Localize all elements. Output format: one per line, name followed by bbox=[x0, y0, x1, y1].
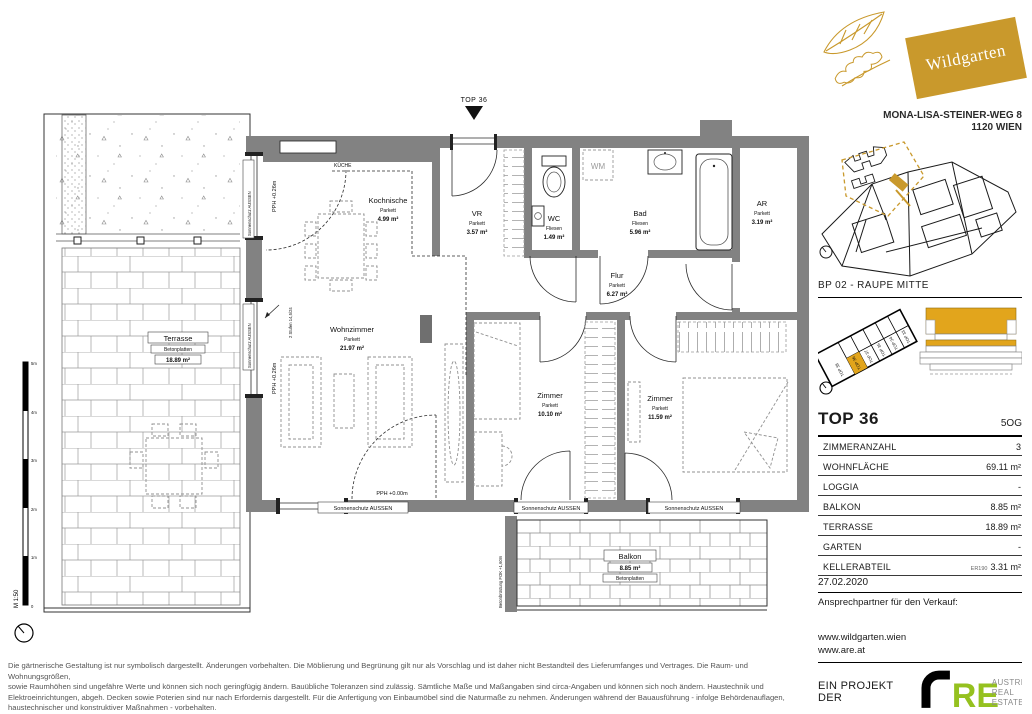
disclaimer-line: haustechnischer und konstruktiver Maßnah… bbox=[8, 703, 808, 714]
wardrobes bbox=[504, 150, 786, 498]
section-highlight-floor bbox=[926, 308, 1016, 334]
room-label-terrasse: Terrasse Betonplatten 18.89 m² bbox=[148, 332, 208, 364]
room-label-kochnische: Kochnische Parkett 4.99 m² bbox=[369, 196, 408, 223]
are-caption-1: AUSTRIAN bbox=[992, 678, 1022, 687]
are-caption-2: REAL bbox=[992, 688, 1015, 697]
key-plan: TOP 38 TOP 36 TOP 37 TOP 35 TOP 34 TOP 3… bbox=[818, 310, 917, 387]
room-label-zimmer2: Zimmer Parkett 11.59 m² bbox=[647, 394, 673, 421]
zimmer1-name: Zimmer bbox=[537, 391, 563, 400]
scale-label: M 1:50 bbox=[14, 589, 20, 608]
section-diagram bbox=[920, 308, 1022, 374]
bad-area: 5.96 m² bbox=[630, 229, 651, 236]
table-row: WOHNFLÄCHE 69.11 m² bbox=[818, 456, 1022, 476]
disclaimer-line: sowie Raumhöhen sind ungefähre Werte und… bbox=[8, 682, 808, 693]
terrasse-name: Terrasse bbox=[164, 334, 193, 343]
windows bbox=[245, 152, 742, 514]
kochnische-area: 4.99 m² bbox=[378, 216, 399, 223]
website-wildgarten[interactable]: www.wildgarten.wien bbox=[818, 631, 1022, 644]
sonnenschutz-label-2: Sonnenschutz AUSSEN bbox=[522, 506, 581, 512]
vr-finish: Parkett bbox=[469, 221, 485, 227]
project-footer: EIN PROJEKT DER RE AUSTRIAN REAL ESTATE bbox=[818, 662, 1022, 710]
wm-label: WM bbox=[591, 162, 606, 171]
leaf-icon bbox=[818, 8, 910, 94]
address-street: MONA-LISA-STEINER-WEG 8 bbox=[883, 110, 1022, 122]
row-label: KELLERABTEIL bbox=[818, 562, 891, 575]
are-caption-3: ESTATE bbox=[992, 698, 1022, 707]
unit-header: TOP 36 5OG bbox=[818, 409, 1022, 437]
vr-area: 3.57 m² bbox=[467, 229, 488, 236]
room-label-balkon: Balkon 8.85 m² Betonplatten bbox=[603, 550, 657, 582]
zimmer2-name: Zimmer bbox=[647, 394, 673, 403]
room-label-bad: Bad Fliesen 5.96 m² bbox=[630, 209, 651, 236]
sonnenschutz-label-5: Sonnenschutz AUSSEN bbox=[247, 323, 252, 368]
plan-date: 27.02.2020 bbox=[818, 577, 1022, 593]
row-value: 8.85 m² bbox=[990, 502, 1022, 515]
row-label: ZIMMERANZAHL bbox=[818, 442, 896, 455]
balcony-area: Betonbrüstung FOK +1,60m Balkon 8.85 m² … bbox=[498, 516, 767, 612]
address: MONA-LISA-STEINER-WEG 8 1120 WIEN bbox=[883, 110, 1022, 134]
bad-finish: Fliesen bbox=[632, 221, 648, 227]
wildgarten-logo-text: Wildgarten bbox=[924, 40, 1007, 75]
are-logo: RE AUSTRIAN REAL ESTATE bbox=[920, 670, 1022, 710]
entrance: TOP 36 bbox=[450, 97, 497, 196]
pph-label-3: PPH +0.00m bbox=[376, 491, 408, 497]
unit-floor: 5OG bbox=[1001, 418, 1022, 429]
table-row: LOGGIA - bbox=[818, 476, 1022, 496]
row-value: ER1903.31 m² bbox=[971, 562, 1022, 575]
wohnzimmer-area: 21.97 m² bbox=[340, 345, 364, 352]
row-label: BALKON bbox=[818, 502, 861, 515]
flur-area: 6.27 m² bbox=[607, 291, 628, 298]
scale-mark-2m: 2m bbox=[31, 507, 37, 512]
kueche-label: KÜCHE bbox=[334, 162, 352, 169]
scale-mark-3m: 3m bbox=[31, 458, 37, 463]
room-label-ar: AR Parkett 3.19 m² bbox=[752, 199, 773, 226]
wohnzimmer-name: Wohnzimmer bbox=[330, 325, 375, 334]
project-label: EIN PROJEKT DER bbox=[818, 670, 920, 704]
disclaimer-line: Die gärtnerische Gestaltung ist nur symb… bbox=[8, 661, 808, 682]
ar-area: 3.19 m² bbox=[752, 219, 773, 226]
table-row: KELLERABTEIL ER1903.31 m² bbox=[818, 556, 1022, 576]
terrace-area: Terrasse Betonplatten 18.89 m² bbox=[44, 114, 250, 612]
pph-label-1: PPH +0.26m bbox=[272, 180, 278, 212]
row-value: 18.89 m² bbox=[985, 522, 1022, 535]
wc-finish: Fliesen bbox=[546, 226, 562, 232]
unit-id: TOP 36 bbox=[818, 409, 879, 429]
terrasse-area: 18.89 m² bbox=[166, 357, 190, 364]
room-label-wohnzimmer: Wohnzimmer Parkett 21.97 m² bbox=[330, 325, 375, 352]
contact-label: Ansprechpartner für den Verkauf: bbox=[818, 597, 1022, 608]
websites: www.wildgarten.wien www.are.at bbox=[818, 631, 1022, 657]
scale-mark-4m: 4m bbox=[31, 410, 37, 415]
row-value: - bbox=[1018, 542, 1022, 555]
bruestung-label: Betonbrüstung FOK +1,60m bbox=[498, 555, 503, 608]
doors bbox=[266, 170, 732, 500]
kitchen-niche bbox=[280, 141, 336, 153]
building-diagrams: TOP 38 TOP 36 TOP 37 TOP 35 TOP 34 TOP 3… bbox=[818, 300, 1022, 400]
table-row: BALKON 8.85 m² bbox=[818, 496, 1022, 516]
ar-finish: Parkett bbox=[754, 211, 770, 217]
room-label-wc: WC Fliesen 1.49 m² bbox=[544, 214, 565, 241]
disclaimer-line: Elektroeinrichtungen, abgeh. Decken sowi… bbox=[8, 693, 808, 704]
wc-area: 1.49 m² bbox=[544, 234, 565, 241]
zimmer1-area: 10.10 m² bbox=[538, 411, 562, 418]
entrance-label: TOP 36 bbox=[461, 97, 488, 104]
ar-name: AR bbox=[757, 199, 768, 208]
wohnzimmer-finish: Parkett bbox=[344, 337, 360, 343]
site-plan-label: BP 02 - RAUPE MITTE bbox=[818, 280, 1022, 298]
scale-mark-1m: 1m bbox=[31, 555, 37, 560]
row-label: TERRASSE bbox=[818, 522, 873, 535]
table-row: TERRASSE 18.89 m² bbox=[818, 516, 1022, 536]
flur-finish: Parkett bbox=[609, 283, 625, 289]
room-label-vr: VR Parkett 3.57 m² bbox=[467, 209, 488, 236]
pph-label-2: PPH +0.26m bbox=[272, 362, 278, 394]
bad-name: Bad bbox=[633, 209, 646, 218]
row-label: WOHNFLÄCHE bbox=[818, 462, 889, 475]
table-row: GARTEN - bbox=[818, 536, 1022, 556]
room-label-flur: Flur Parkett 6.27 m² bbox=[607, 271, 628, 298]
row-label: LOGGIA bbox=[818, 482, 859, 495]
annotations: PPH +0.26m PPH +0.26m PPH +0.00m 2 Stufe… bbox=[243, 160, 740, 513]
sonnenschutz-label-1: Sonnenschutz AUSSEN bbox=[334, 506, 393, 512]
sonnenschutz-label-4: Sonnenschutz AUSSEN bbox=[247, 191, 252, 236]
unit-table: ZIMMERANZAHL 3 WOHNFLÄCHE 69.11 m² LOGGI… bbox=[818, 436, 1022, 576]
zimmer2-finish: Parkett bbox=[652, 406, 668, 412]
website-are[interactable]: www.are.at bbox=[818, 644, 1022, 657]
sonnenschutz-label-3: Sonnenschutz AUSSEN bbox=[665, 506, 724, 512]
kochnische-name: Kochnische bbox=[369, 196, 408, 205]
row-value-prefix: ER190 bbox=[971, 566, 988, 572]
row-label: GARTEN bbox=[818, 542, 862, 555]
balkon-finish: Betonplatten bbox=[616, 576, 644, 582]
site-map bbox=[812, 132, 1022, 278]
balkon-name: Balkon bbox=[619, 552, 642, 561]
disclaimer: Die gärtnerische Gestaltung ist nur symb… bbox=[8, 661, 808, 714]
room-label-zimmer1: Zimmer Parkett 10.10 m² bbox=[537, 391, 563, 418]
vr-name: VR bbox=[472, 209, 483, 218]
table-row: ZIMMERANZAHL 3 bbox=[818, 436, 1022, 456]
row-value: 69.11 m² bbox=[986, 462, 1022, 475]
row-value: - bbox=[1018, 482, 1022, 495]
flur-name: Flur bbox=[611, 271, 624, 280]
scale-mark-5m: 5m bbox=[31, 361, 37, 366]
scale-mark-0: 0 bbox=[31, 604, 34, 609]
kochnische-finish: Parkett bbox=[380, 208, 396, 214]
site-building-highlight bbox=[889, 173, 909, 191]
terrasse-finish: Betonplatten bbox=[164, 347, 192, 353]
stufen-label: 2 Stufen 14,5/24 bbox=[288, 307, 293, 338]
site-boundary bbox=[842, 142, 924, 216]
scale-bar: 5m 4m 3m 2m 1m 0 M 1:50 bbox=[14, 361, 37, 642]
zimmer1-finish: Parkett bbox=[542, 403, 558, 409]
row-value: 3 bbox=[1016, 442, 1022, 455]
wc-name: WC bbox=[548, 214, 561, 223]
zimmer2-area: 11.59 m² bbox=[648, 414, 672, 421]
balkon-area: 8.85 m² bbox=[620, 565, 641, 572]
entrance-arrow-icon bbox=[465, 106, 483, 120]
